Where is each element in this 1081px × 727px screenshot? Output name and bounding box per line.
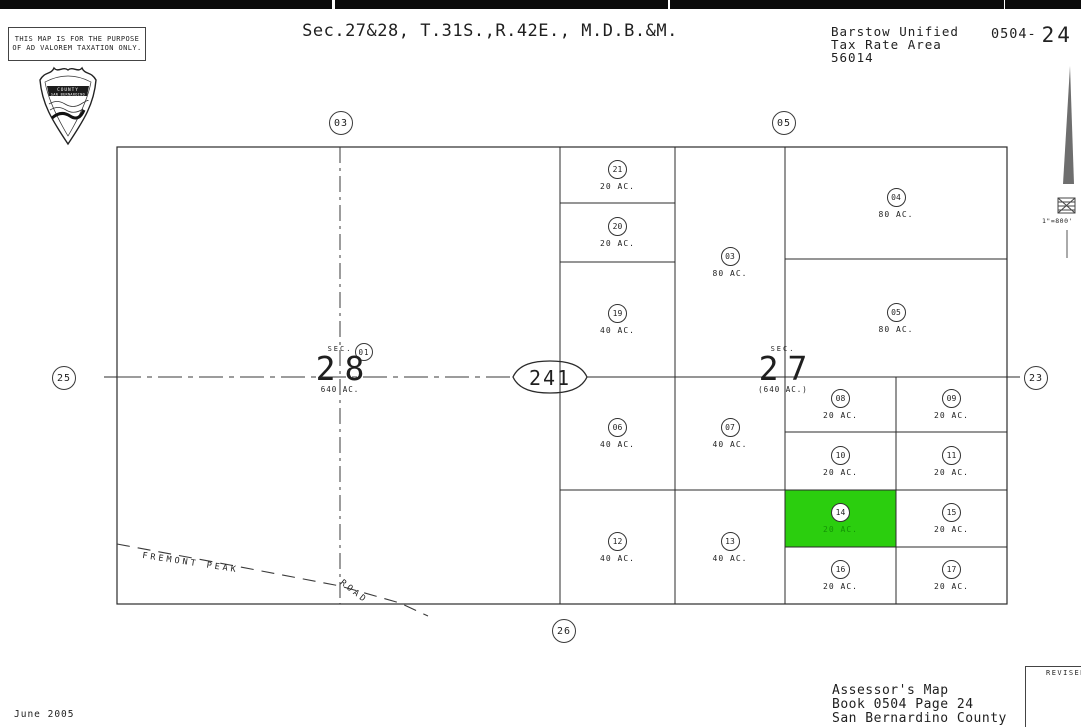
parcel-acreage: 80 AC.: [879, 210, 914, 219]
parcel-19: 19 40 AC.: [560, 262, 675, 377]
section-ref-03: 03: [329, 111, 353, 135]
parcel-acreage: 20 AC.: [934, 411, 969, 420]
parcel-acreage: 40 AC.: [600, 440, 635, 449]
parcel-number-circle: 15: [942, 503, 961, 522]
section-ref-25: 25: [52, 366, 76, 390]
parcel-21: 21 20 AC.: [560, 147, 675, 203]
parcel-13: 13 40 AC.: [675, 490, 785, 604]
parcel-15: 15 20 AC.: [896, 490, 1007, 547]
parcel-number-circle: 13: [721, 532, 740, 551]
parcel-acreage: 20 AC.: [934, 582, 969, 591]
parcel-number-circle: 08: [831, 389, 850, 408]
map-title: Sec.27&28, T.31S.,R.42E., M.D.B.&M.: [280, 21, 700, 41]
parcel-acreage: 80 AC.: [879, 325, 914, 334]
section-ref-05: 05: [772, 111, 796, 135]
parcel-14-highlighted: 14 20 AC.: [785, 490, 896, 547]
parcel-number-circle: 20: [608, 217, 627, 236]
disclaimer-box: THIS MAP IS FOR THE PURPOSE OF AD VALORE…: [8, 27, 146, 61]
parcel-number-circle: 04: [887, 188, 906, 207]
parcel-number-circle: 12: [608, 532, 627, 551]
parcel-acreage: 80 AC.: [713, 269, 748, 278]
parcel-20: 20 20 AC.: [560, 203, 675, 262]
parcel-acreage: 20 AC.: [934, 525, 969, 534]
parcel-number-circle: 14: [831, 503, 850, 522]
parcel-number-circle: 09: [942, 389, 961, 408]
parcel-acreage: 20 AC.: [823, 582, 858, 591]
revised-box: REVISED: [1025, 666, 1081, 727]
parcel-17: 17 20 AC.: [896, 547, 1007, 604]
parcel-04: 04 80 AC.: [785, 147, 1007, 259]
assessor-map-sheet: THIS MAP IS FOR THE PURPOSE OF AD VALORE…: [0, 0, 1081, 727]
north-arrow-icon: [1063, 66, 1074, 184]
parcel-acreage: 20 AC.: [934, 468, 969, 477]
section-label-28: SEC. 28 640 AC.: [293, 345, 387, 394]
parcel-05: 05 80 AC.: [785, 259, 1007, 377]
parcel-number-circle: 05: [887, 303, 906, 322]
road-suffix-label: ROAD: [338, 578, 370, 606]
tax-area-line3: 56014: [831, 51, 959, 64]
parcel-06: 06 40 AC.: [560, 377, 675, 490]
disclaimer-line2: OF AD VALOREM TAXATION ONLY.: [12, 44, 141, 53]
parcel-number-circle: 06: [608, 418, 627, 437]
parcel-11: 11 20 AC.: [896, 432, 1007, 490]
parcel-acreage: 40 AC.: [600, 326, 635, 335]
parcel-number-circle: 19: [608, 304, 627, 323]
seal-arrowhead-outline: [40, 68, 96, 144]
parcel-08: 08 20 AC.: [785, 377, 896, 432]
disclaimer-line1: THIS MAP IS FOR THE PURPOSE: [15, 35, 140, 44]
book-code: 0504-: [991, 26, 1037, 42]
scale-label: 1"=800': [1042, 217, 1073, 225]
page-number: 24: [1042, 26, 1073, 45]
parcel-number-circle: 03: [721, 247, 740, 266]
parcel-number-circle: 10: [831, 446, 850, 465]
parcel-acreage: 20 AC.: [823, 411, 858, 420]
parcel-number-circle: 21: [608, 160, 627, 179]
revised-label: REVISED: [1026, 669, 1081, 677]
road-name-label: FREMONT PEAK: [142, 551, 240, 575]
section-number: 28: [307, 353, 374, 384]
film-strip-bar: [0, 0, 1081, 9]
section-ref-26: 26: [552, 619, 576, 643]
date-stamp: June 2005: [14, 709, 74, 720]
seal-text-san-bernardino: SAN BERNARDINO: [51, 92, 85, 96]
county-seal: COUNTY SAN BERNARDINO: [36, 62, 100, 150]
parcel-acreage: 20 AC.: [823, 468, 858, 477]
parcel-acreage: 20 AC.: [600, 239, 635, 248]
parcel-03: 03 80 AC.: [675, 147, 785, 377]
parcel-acreage: 40 AC.: [600, 554, 635, 563]
parcel-09: 09 20 AC.: [896, 377, 1007, 432]
section-ref-23: 23: [1024, 366, 1048, 390]
tax-rate-area: Barstow Unified Tax Rate Area 56014: [831, 25, 959, 64]
parcel-number-circle: 11: [942, 446, 961, 465]
parcel-acreage: 40 AC.: [713, 440, 748, 449]
assessor-line1: Assessor's Map: [832, 684, 1007, 698]
parcel-10: 10 20 AC.: [785, 432, 896, 490]
book-page-code: 0504- 24: [991, 26, 1073, 45]
scale-bar-icon: [1058, 198, 1075, 213]
assessor-line2: Book 0504 Page 24: [832, 698, 1007, 712]
parcel-acreage: 40 AC.: [713, 554, 748, 563]
parcel-number-circle: 17: [942, 560, 961, 579]
parcel-acreage: 20 AC.: [600, 182, 635, 191]
parcel-number-circle: 16: [831, 560, 850, 579]
section-acreage: 640 AC.: [321, 385, 360, 394]
assessor-line3: San Bernardino County: [832, 712, 1007, 726]
parcel-number-circle: 07: [721, 418, 740, 437]
parcel-12: 12 40 AC.: [560, 490, 675, 604]
parcel-16: 16 20 AC.: [785, 547, 896, 604]
parcel-07: 07 40 AC.: [675, 377, 785, 490]
parcel-acreage: 20 AC.: [823, 525, 858, 534]
assessor-map-credit: Assessor's Map Book 0504 Page 24 San Ber…: [832, 684, 1007, 726]
